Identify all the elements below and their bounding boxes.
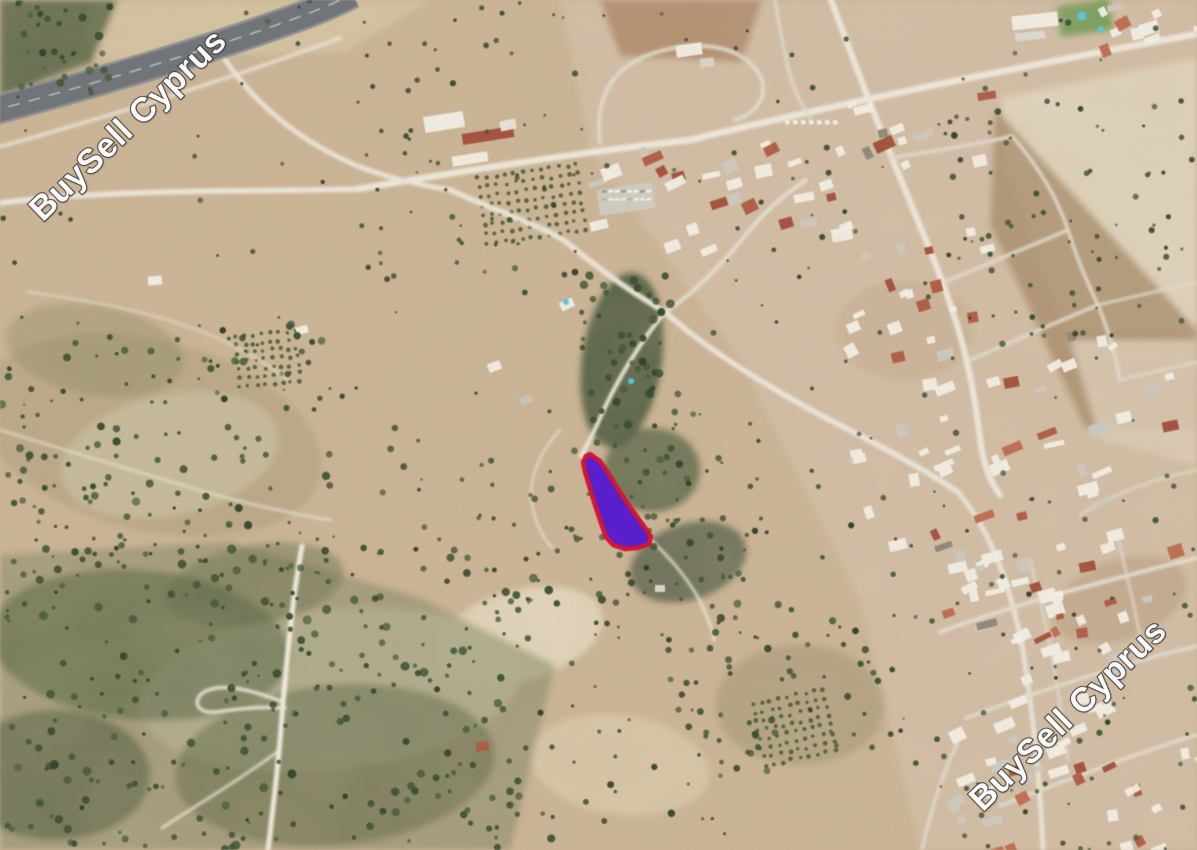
- satellite-imagery: [0, 0, 1197, 850]
- image-grain: [0, 0, 1197, 850]
- satellite-map[interactable]: BuySell Cyprus BuySell Cyprus: [0, 0, 1197, 850]
